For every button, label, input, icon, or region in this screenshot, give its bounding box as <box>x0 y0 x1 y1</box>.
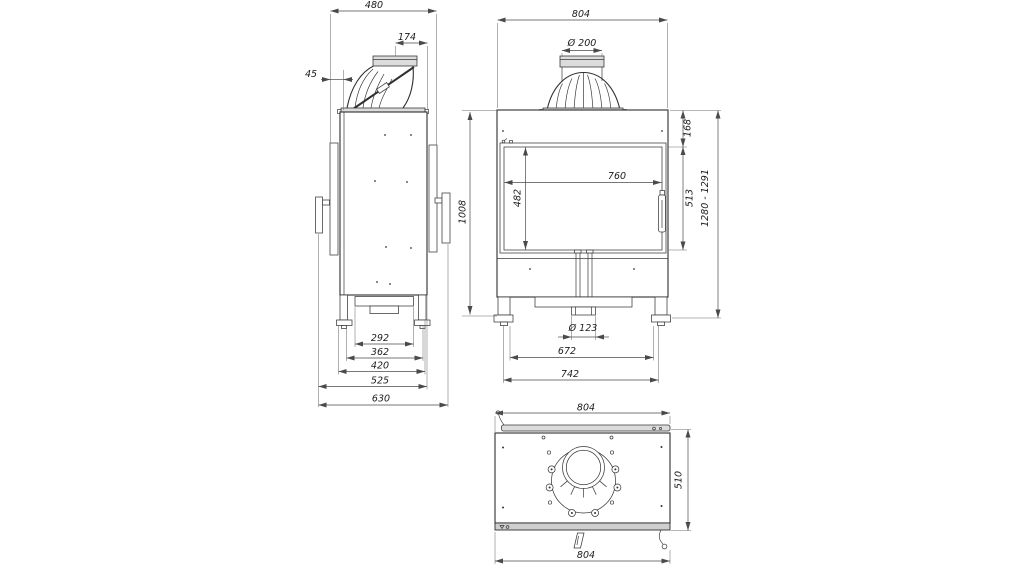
top-view: 804 510 804 <box>495 403 691 565</box>
dim-label-510: 510 <box>674 471 685 489</box>
pedestal-side <box>355 297 414 307</box>
dim-front-168-513-chain: 168 513 <box>668 111 721 251</box>
bracket-right <box>442 193 450 243</box>
dim-label-760: 760 <box>608 171 626 182</box>
front-frame-strip <box>502 425 671 431</box>
bracket-pin-right <box>435 198 442 203</box>
dim-label-804-top: 804 <box>572 9 590 20</box>
dim-label-672: 672 <box>558 346 576 357</box>
glass-pane <box>504 147 662 250</box>
dim-front-overall-height: 1280 - 1291 <box>672 111 721 319</box>
dim-label-420: 420 <box>371 361 389 372</box>
pedestal-front <box>535 297 632 307</box>
dim-label-o123: Ø 123 <box>568 323 598 334</box>
dim-side-45: 45 <box>305 69 353 110</box>
flue-collar-front <box>540 56 627 114</box>
dim-front-air-inlet: Ø 123 <box>558 316 609 340</box>
dim-label-1280-1291: 1280 - 1291 <box>700 169 711 227</box>
air-spigot-side <box>370 306 399 314</box>
lifting-wire-right <box>659 530 667 549</box>
flue-pipe-inner <box>566 450 600 484</box>
dim-label-292: 292 <box>371 333 389 344</box>
flue-elbow <box>347 56 417 108</box>
technical-drawing-page: 480 174 45 292 362 <box>0 0 1024 575</box>
dim-label-168: 168 <box>683 119 694 137</box>
dim-label-1008: 1008 <box>458 200 469 224</box>
dim-label-513: 513 <box>685 189 696 207</box>
dim-label-top-804-bottom: 804 <box>577 550 595 561</box>
dim-top-510: 510 <box>671 430 691 531</box>
cold-handle <box>574 533 584 548</box>
door-handle <box>659 191 666 233</box>
rear-frame-strip <box>495 523 670 530</box>
side-view: 480 174 45 292 362 <box>305 0 450 407</box>
dim-label-362: 362 <box>371 347 389 358</box>
fireplace-insert-drawing: 480 174 45 292 362 <box>0 0 1024 575</box>
dim-label-742: 742 <box>561 369 579 380</box>
dim-front-1008: 1008 <box>458 111 498 317</box>
front-view: 804 Ø 200 1008 760 482 168 <box>458 9 722 383</box>
dim-side-174: 174 <box>396 32 428 110</box>
dim-label-top-804-top: 804 <box>577 403 595 414</box>
air-inlet-spigot <box>572 307 596 315</box>
dim-front-flue-diameter: Ø 200 <box>562 38 602 57</box>
bracket-pin-left <box>323 200 330 205</box>
dim-label-630: 630 <box>372 394 390 405</box>
bracket-left <box>316 197 323 233</box>
dim-label-525: 525 <box>371 376 389 387</box>
dim-label-482: 482 <box>513 189 524 207</box>
mounting-rail-left <box>330 143 338 255</box>
damper-rod <box>353 67 414 109</box>
dim-label-o200: Ø 200 <box>567 38 597 49</box>
dim-front-742: 742 <box>504 326 659 383</box>
dim-label-174: 174 <box>398 32 416 43</box>
dim-label-480: 480 <box>365 0 383 11</box>
body-side <box>340 112 427 295</box>
dim-label-45: 45 <box>305 69 317 80</box>
